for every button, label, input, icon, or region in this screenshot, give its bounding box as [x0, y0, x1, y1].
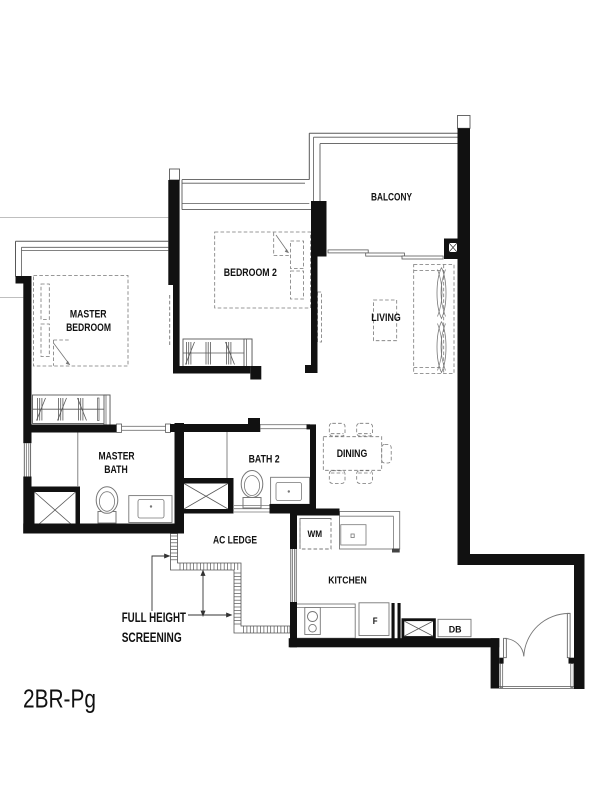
svg-text:2BR-Pg: 2BR-Pg	[23, 684, 96, 714]
svg-text:DB: DB	[449, 624, 462, 634]
svg-text:DINING: DINING	[337, 448, 368, 460]
svg-text:SCREENING: SCREENING	[122, 630, 182, 645]
svg-text:MASTER: MASTER	[70, 309, 107, 321]
svg-text:AC LEDGE: AC LEDGE	[213, 535, 257, 547]
svg-text:BEDROOM 2: BEDROOM 2	[224, 267, 277, 279]
svg-text:BEDROOM: BEDROOM	[66, 322, 111, 334]
svg-text:BATH 2: BATH 2	[249, 454, 280, 466]
svg-text:MASTER: MASTER	[99, 451, 135, 463]
svg-text:KITCHEN: KITCHEN	[328, 575, 366, 587]
svg-text:F: F	[373, 616, 378, 626]
svg-text:WM: WM	[308, 529, 323, 540]
svg-text:LIVING: LIVING	[371, 312, 400, 324]
svg-text:BALCONY: BALCONY	[371, 191, 412, 203]
svg-text:FULL HEIGHT: FULL HEIGHT	[122, 610, 187, 625]
svg-text:BATH: BATH	[104, 464, 127, 476]
